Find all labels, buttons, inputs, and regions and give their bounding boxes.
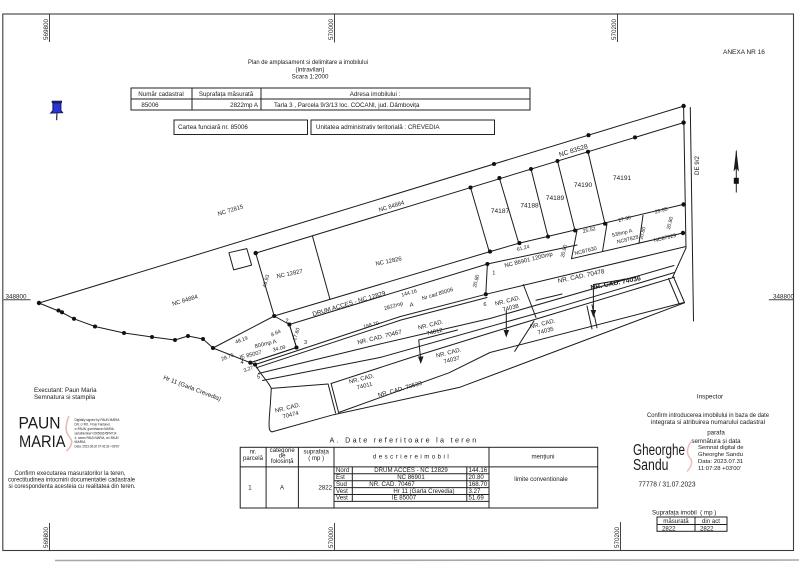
svg-text:Inspector: Inspector	[697, 394, 724, 401]
svg-text:570000: 570000	[328, 18, 335, 40]
svg-text:85006: 85006	[141, 102, 159, 109]
svg-text:6: 6	[483, 302, 486, 308]
svg-text:8.64: 8.64	[270, 329, 282, 339]
svg-text:Semnatura si stampila: Semnatura si stampila	[34, 394, 96, 401]
svg-text:20.80: 20.80	[666, 216, 675, 230]
svg-text:Tarla 3 , Parcela 9/3/13 loc.: Tarla 3 , Parcela 9/3/13 loc. COCANI, ju…	[274, 102, 420, 109]
svg-text:2822: 2822	[700, 526, 714, 533]
svg-text:PAUN: PAUN	[19, 414, 61, 433]
svg-text:Unitatea administrativ teritor: Unitatea administrativ teritorială : CRE…	[316, 124, 440, 131]
svg-text:29.95: 29.95	[654, 207, 668, 216]
svg-text:4: 4	[240, 360, 243, 366]
svg-text:Cartea funciară nr. 85006: Cartea funciară nr. 85006	[178, 124, 248, 131]
svg-text:A: A	[408, 302, 414, 309]
svg-text:74189: 74189	[546, 195, 565, 202]
svg-text:34.09: 34.09	[272, 345, 286, 354]
svg-text:48.19: 48.19	[235, 335, 249, 345]
svg-text:168.70: 168.70	[363, 321, 380, 331]
svg-text:Adresa imobilului :: Adresa imobilului :	[350, 91, 401, 98]
svg-text:570000: 570000	[328, 526, 335, 548]
svg-text:2822mp: 2822mp	[384, 301, 404, 312]
svg-text:569800: 569800	[43, 526, 50, 548]
svg-text:NC 72815: NC 72815	[217, 204, 245, 218]
svg-text:348800: 348800	[773, 294, 795, 301]
svg-text:MARIA: MARIA	[19, 432, 66, 451]
svg-text:Sandu: Sandu	[633, 457, 669, 474]
svg-text:Semnat digital de: Semnat digital de	[698, 445, 744, 451]
svg-text:IE 85007: IE 85007	[392, 495, 417, 502]
svg-text:17.60: 17.60	[292, 327, 302, 341]
svg-text:parcelă: parcelă	[243, 455, 264, 462]
svg-text:Plan de amplasament si delimit: Plan de amplasament si delimitare a imob…	[248, 59, 368, 66]
svg-text:348800: 348800	[6, 294, 28, 301]
svg-text:A. Date referitoare la ter: A. Date referitoare la teren	[329, 436, 478, 445]
svg-text:integrata si atribuirea numaru: integrata si atribuirea numarului cadast…	[651, 419, 765, 426]
svg-text:Confirm introducerea imobilulu: Confirm introducerea imobilului in baza …	[647, 412, 770, 419]
svg-text:74188: 74188	[520, 203, 539, 210]
svg-text:(intravilan): (intravilan)	[296, 67, 325, 74]
svg-text:NC 12827: NC 12827	[276, 269, 303, 280]
svg-text:NC 84884: NC 84884	[172, 294, 200, 308]
svg-text:Data: 2023.07.31: Data: 2023.07.31	[698, 459, 743, 465]
svg-text:Executant: Paun Maria: Executant: Paun Maria	[34, 387, 97, 394]
svg-text:NC 86901 1200mp: NC 86901 1200mp	[504, 251, 554, 269]
svg-text:Gheorghe Sandu: Gheorghe Sandu	[698, 452, 743, 458]
svg-text:d e s c r i e r e i m o b i: d e s c r i e r e i m o b i l	[373, 454, 449, 461]
svg-text:mențiuni: mențiuni	[531, 454, 554, 461]
svg-text:570200: 570200	[614, 526, 621, 548]
svg-text:Număr cadastral: Număr cadastral	[138, 91, 183, 98]
svg-text:28.75: 28.75	[221, 352, 235, 362]
svg-text:măsurată: măsurată	[663, 518, 689, 525]
svg-text:51.69: 51.69	[469, 495, 485, 502]
svg-text:limite conventionale: limite conventionale	[514, 476, 568, 483]
svg-text:( mp ): ( mp )	[308, 455, 324, 462]
svg-text:2822: 2822	[662, 526, 676, 533]
svg-text:Vest: Vest	[336, 495, 348, 502]
svg-text:folosință: folosință	[271, 458, 294, 465]
svg-text:Scara 1:2000: Scara 1:2000	[292, 74, 329, 81]
svg-text:A: A	[280, 485, 285, 492]
svg-text:ANEXA NR 16: ANEXA NR 16	[723, 49, 765, 56]
svg-text:570200: 570200	[611, 18, 618, 40]
svg-text:2822: 2822	[318, 485, 332, 492]
svg-text:74187: 74187	[491, 208, 510, 215]
svg-text:5: 5	[257, 375, 260, 381]
svg-text:20.80: 20.80	[472, 274, 481, 288]
svg-text:11:07:28 +03'00': 11:07:28 +03'00'	[698, 466, 741, 472]
svg-text:Data: 2023.08.02 07:42:33 +03': Data: 2023.08.02 07:42:33 +03'00'	[75, 444, 120, 449]
svg-text:1: 1	[492, 271, 495, 277]
svg-text:DE 9/2: DE 9/2	[694, 156, 701, 175]
svg-text:Suprafața măsurată: Suprafața măsurată	[199, 91, 254, 98]
svg-text:semnătura și data: semnătura și data	[691, 438, 741, 445]
svg-text:27.30: 27.30	[618, 215, 632, 224]
svg-text:74190: 74190	[574, 182, 593, 189]
svg-text:2: 2	[285, 319, 288, 325]
svg-text:74191: 74191	[613, 175, 632, 182]
svg-text:NC87929: NC87929	[653, 233, 677, 244]
svg-text:2822mp A: 2822mp A	[230, 102, 259, 109]
svg-text:Nr cad 85006: Nr cad 85006	[421, 287, 454, 302]
svg-text:61.24: 61.24	[516, 244, 530, 253]
svg-text:din act: din act	[702, 518, 720, 525]
svg-text:parafa: parafa	[707, 430, 725, 437]
svg-text:77778 / 31.07.2023: 77778 / 31.07.2023	[639, 480, 696, 489]
svg-text:20.80: 20.80	[560, 244, 569, 258]
svg-text:1: 1	[248, 485, 252, 492]
svg-text:Suprafața imobil ( mp ): Suprafața imobil ( mp )	[652, 510, 716, 517]
svg-text:46.93: 46.93	[262, 274, 272, 288]
svg-text:Hr 11 (Garla Crevedia): Hr 11 (Garla Crevedia)	[162, 374, 222, 402]
svg-text:3: 3	[304, 340, 307, 346]
svg-text:20.80: 20.80	[638, 226, 647, 240]
svg-text:3.27: 3.27	[243, 365, 255, 374]
svg-text:569800: 569800	[43, 18, 50, 40]
svg-text:si corespondenta acesteia cu r: si corespondenta acesteia cu realitatea …	[9, 483, 136, 490]
svg-text:NC 12826: NC 12826	[375, 256, 403, 268]
